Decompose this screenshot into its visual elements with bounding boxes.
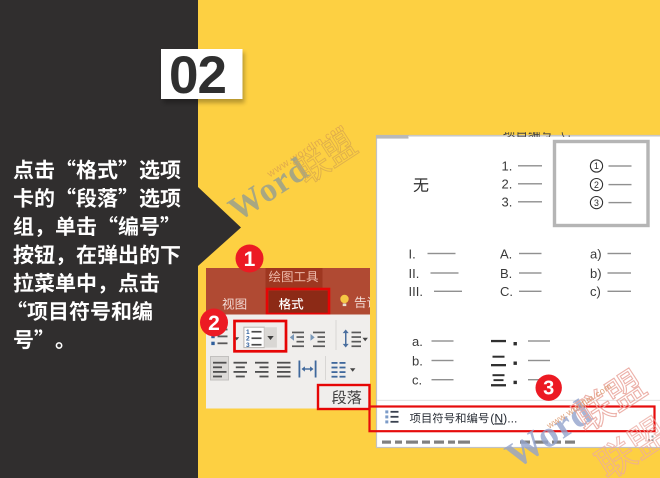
svg-text:c.: c. — [412, 373, 422, 388]
svg-text:2.: 2. — [502, 177, 513, 192]
svg-text:02: 02 — [169, 46, 226, 105]
svg-text:b): b) — [590, 266, 602, 281]
svg-text:III.: III. — [409, 284, 423, 299]
svg-text:1: 1 — [594, 161, 599, 171]
svg-text:A.: A. — [500, 246, 512, 261]
svg-text:c): c) — [590, 284, 601, 299]
svg-text:b.: b. — [412, 353, 423, 368]
svg-text:3: 3 — [594, 198, 599, 208]
svg-text:3: 3 — [246, 342, 250, 349]
svg-text:(N)...: (N)... — [490, 411, 517, 425]
svg-text:3.: 3. — [502, 195, 513, 210]
svg-text:C.: C. — [500, 284, 513, 299]
svg-text:1.: 1. — [502, 159, 513, 174]
svg-text:a.: a. — [412, 334, 423, 349]
svg-text:a): a) — [590, 246, 602, 261]
svg-text:2: 2 — [594, 180, 599, 190]
svg-text:II.: II. — [409, 266, 420, 281]
svg-text:2: 2 — [208, 312, 220, 335]
svg-text:I.: I. — [409, 246, 416, 261]
svg-text:B.: B. — [500, 266, 512, 281]
svg-text:3: 3 — [543, 378, 554, 400]
svg-text:1: 1 — [244, 248, 256, 271]
